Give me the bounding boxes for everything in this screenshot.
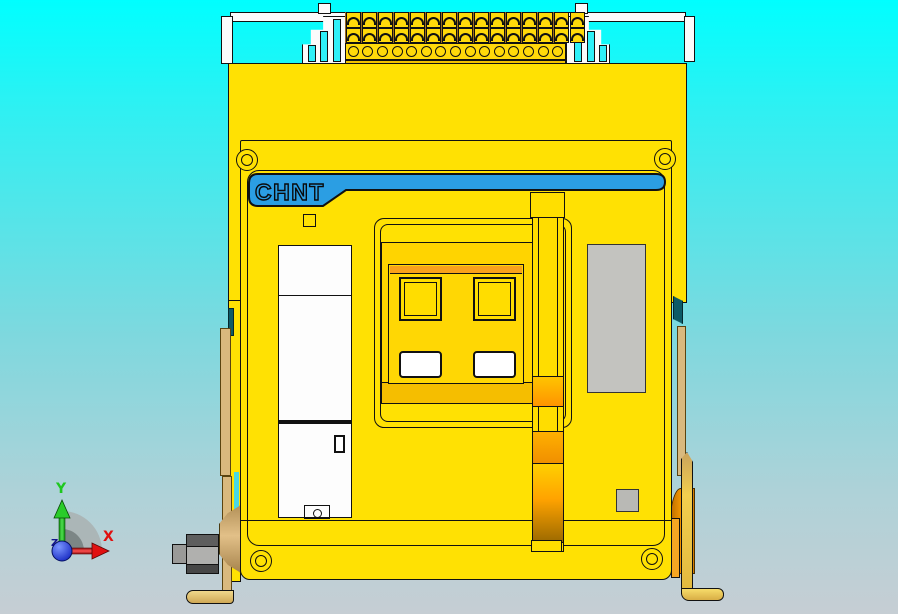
screw-core	[255, 555, 267, 567]
terminal-screw-arc	[539, 33, 552, 41]
arc-chute-slot	[320, 31, 328, 62]
axis-triad[interactable]: Y X Z	[30, 478, 120, 573]
terminal-cell	[570, 28, 585, 43]
terminal-circle	[348, 46, 359, 57]
panel-screw-top-left[interactable]	[236, 149, 258, 171]
terminal-circle	[362, 46, 373, 57]
terminal-screw-arc	[459, 17, 472, 25]
terminal-cell	[346, 12, 361, 28]
window-glass	[404, 282, 437, 316]
end-tab-right	[684, 16, 695, 62]
screw-core	[241, 154, 253, 166]
terminal-cell	[474, 28, 489, 43]
indicator-window-right[interactable]	[473, 277, 516, 321]
rail-orange-segment-2	[533, 431, 563, 465]
terminal-screw-arc	[491, 33, 504, 41]
terminal-screw-arc	[443, 33, 456, 41]
push-button-right[interactable]	[473, 351, 516, 378]
rail-orange-segment-1	[533, 376, 563, 407]
terminal-screw-arc	[555, 17, 568, 25]
panel-screw-bottom-left[interactable]	[250, 550, 272, 572]
terminal-screw-arc	[523, 17, 536, 25]
arc-chute-slot	[599, 45, 607, 62]
terminal-cell	[410, 28, 425, 43]
y-axis-label: Y	[55, 481, 67, 497]
terminal-screw-arc	[363, 33, 376, 41]
terminal-screw-arc	[427, 33, 440, 41]
terminal-cell	[490, 12, 505, 28]
terminal-cell	[522, 12, 537, 28]
terminal-cell	[378, 28, 393, 43]
terminal-screw-arc	[507, 33, 520, 41]
terminal-screw-arc	[347, 33, 360, 41]
right-orange-strip	[671, 518, 680, 578]
left-mounting-foot[interactable]	[186, 590, 234, 604]
arc-chute-slot	[587, 31, 595, 62]
nameplate-gray-panel	[587, 244, 646, 393]
arc-chute-left	[302, 16, 346, 65]
screw-core	[659, 153, 671, 165]
terminal-cell	[362, 12, 377, 28]
accessory-square	[616, 489, 639, 512]
terminal-circle	[552, 46, 563, 57]
knob-tip[interactable]	[172, 544, 187, 564]
terminal-cell	[394, 28, 409, 43]
terminal-circle	[538, 46, 549, 57]
label-divider	[279, 295, 351, 296]
terminal-screw-arc	[459, 33, 472, 41]
arc-chute-slot	[333, 19, 341, 62]
terminal-circle	[435, 46, 446, 57]
terminal-row-1	[345, 12, 566, 28]
terminal-row-2	[345, 28, 566, 43]
terminal-screw-arc	[507, 17, 520, 25]
terminal-circle	[523, 46, 534, 57]
terminal-screw-arc	[427, 17, 440, 25]
terminal-screw-arc	[571, 17, 584, 25]
y-axis-arrowhead	[54, 500, 70, 518]
knob-ring-bottom	[186, 564, 219, 574]
terminal-cell	[506, 12, 521, 28]
terminal-screw-arc	[571, 33, 584, 41]
terminal-screw-arc	[395, 33, 408, 41]
terminal-cell	[410, 12, 425, 28]
terminal-cell	[538, 28, 553, 43]
terminal-cell	[426, 28, 441, 43]
terminal-screw-arc	[523, 33, 536, 41]
terminal-circle	[392, 46, 403, 57]
terminal-cell	[570, 12, 585, 28]
rating-label-panel[interactable]	[278, 245, 352, 518]
terminal-circle	[465, 46, 476, 57]
terminal-screw-arc	[491, 17, 504, 25]
label-notch	[304, 505, 330, 519]
terminal-cell	[506, 28, 521, 43]
origin-ball	[52, 541, 72, 561]
terminal-screw-arc	[475, 33, 488, 41]
terminal-screw-arc	[379, 17, 392, 25]
notch-dot	[313, 509, 322, 518]
screw-core	[646, 553, 658, 565]
top-tab-left	[318, 3, 331, 14]
secondary-terminal-strip[interactable]	[345, 12, 566, 66]
push-button-left[interactable]	[399, 351, 442, 378]
terminal-cell	[442, 28, 457, 43]
label-slot	[334, 435, 345, 453]
terminal-cell	[346, 28, 361, 43]
indicator-orange-strip	[390, 266, 522, 274]
window-glass	[478, 282, 511, 316]
terminal-screw-arc	[395, 17, 408, 25]
end-tab-left	[221, 16, 233, 64]
cad-viewport[interactable]: CHNT	[0, 0, 898, 614]
label-thick-divider	[278, 420, 352, 424]
rail-cap	[530, 192, 565, 218]
terminal-screw-arc	[379, 33, 392, 41]
terminal-circle	[406, 46, 417, 57]
terminal-cell	[554, 28, 569, 43]
terminal-screw-arc	[539, 17, 552, 25]
terminal-cell	[538, 12, 553, 28]
right-bracket-vertical	[681, 452, 693, 594]
terminal-screw-arc	[411, 33, 424, 41]
logo-pin-square	[303, 214, 316, 227]
terminal-cell	[394, 12, 409, 28]
terminal-cell	[458, 28, 473, 43]
terminal-cell	[522, 28, 537, 43]
terminal-cell	[362, 28, 377, 43]
rail-end-cap	[531, 540, 562, 552]
mechanism-face-bottom-band	[382, 382, 545, 403]
left-rail	[220, 328, 231, 476]
right-rail	[677, 326, 686, 476]
panel-screw-bottom-right[interactable]	[641, 548, 663, 570]
terminal-screw-arc	[475, 17, 488, 25]
terminal-cell	[458, 12, 473, 28]
x-axis-label: X	[103, 529, 114, 545]
terminal-screw-arc	[347, 17, 360, 25]
terminal-screw-arc	[555, 33, 568, 41]
terminal-circle	[377, 46, 388, 57]
terminal-cell	[378, 12, 393, 28]
right-mounting-foot[interactable]	[681, 588, 724, 601]
terminal-cell	[554, 12, 569, 28]
terminal-circle	[494, 46, 505, 57]
terminal-cell	[490, 28, 505, 43]
racking-rail[interactable]	[532, 217, 564, 552]
terminal-screw-arc	[411, 17, 424, 25]
terminal-screw-arc	[363, 17, 376, 25]
terminal-circle	[479, 46, 490, 57]
terminal-row-3	[345, 43, 566, 60]
rail-gradient-segment	[533, 463, 563, 543]
brand-logo-text: CHNT	[255, 179, 325, 205]
panel-screw-top-right[interactable]	[654, 148, 676, 170]
brand-band: CHNT	[246, 172, 670, 212]
terminal-circle	[421, 46, 432, 57]
terminal-cell	[442, 12, 457, 28]
terminal-circle	[508, 46, 519, 57]
front-panel-seam	[241, 520, 671, 521]
arc-chute-slot	[308, 45, 316, 62]
knob-body[interactable]	[186, 546, 219, 565]
terminal-circle	[450, 46, 461, 57]
terminal-screw-arc	[443, 17, 456, 25]
terminal-cell	[474, 12, 489, 28]
indicator-window-left[interactable]	[399, 277, 442, 321]
terminal-cell	[426, 12, 441, 28]
